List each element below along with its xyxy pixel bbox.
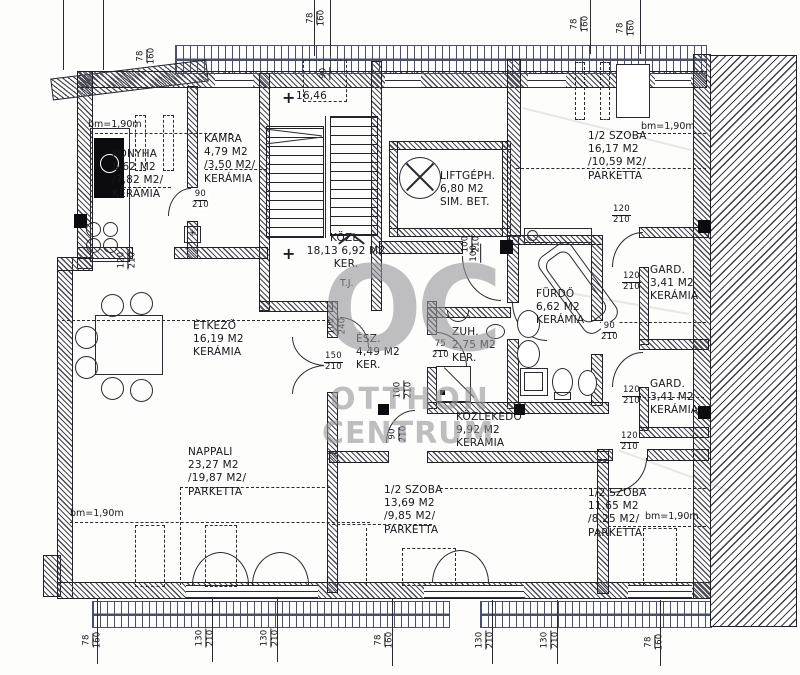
wall-kozlekedo-bottom-right xyxy=(428,452,608,462)
room-net-area: /8,25 M2/ xyxy=(588,513,647,526)
wall-center-right-upper xyxy=(508,60,520,236)
pillar xyxy=(500,240,513,254)
room-area: 16,17 M2 xyxy=(588,143,647,156)
dim-top: 130 xyxy=(475,631,486,650)
chair-icon xyxy=(130,379,153,402)
room-label-liftgeph: LIFTGÉPH. 6,80 M2 SIM. BET. xyxy=(440,170,495,210)
roof-window-dashed xyxy=(575,62,585,120)
room-area: 2,75 M2 xyxy=(452,339,496,352)
dim-bottom: 210 xyxy=(486,632,496,649)
french-door-arc xyxy=(220,552,249,585)
door-arc xyxy=(462,256,501,301)
dim-top: 120 xyxy=(622,386,641,397)
dim-top: 120 xyxy=(612,205,631,216)
flue-box: ✳ xyxy=(184,226,201,243)
chair-icon xyxy=(101,377,124,400)
dim-top: 120 xyxy=(620,432,639,443)
pillar xyxy=(698,406,711,419)
wall-zuh-left-upper xyxy=(428,302,436,334)
room-net-area: /10,59 M2/ xyxy=(588,156,647,169)
french-door-arc xyxy=(192,552,221,585)
floor-plan-canvas: ✳ + + OC OTTHON CENTRUM KONYHA 8, xyxy=(0,0,800,675)
dimension-label: 78160 xyxy=(374,632,394,649)
dim-top: 120 xyxy=(622,272,641,283)
wall-konyha-bottom-right xyxy=(175,248,267,258)
room-name: KAMRA xyxy=(204,133,255,146)
dim-top: 78 xyxy=(306,11,317,24)
dim-bottom: 240 xyxy=(338,318,348,335)
dim-top: 120 xyxy=(117,251,128,270)
room-floor: KER. xyxy=(356,359,400,372)
dim-bottom: 210 xyxy=(551,632,561,649)
room-floor: KERÁMIA xyxy=(650,404,698,417)
window-sill xyxy=(424,585,524,598)
dimension-tick xyxy=(314,0,315,56)
wall-zuh-top xyxy=(428,308,510,317)
room-label-etkezo: ÉTKEZŐ 16,19 M2 KERÁMIA xyxy=(193,320,244,360)
dim-top: 100 xyxy=(393,381,404,400)
double-door-arc xyxy=(292,365,326,394)
dim-top: 90 xyxy=(319,67,330,80)
dim-bottom: 210 xyxy=(399,426,409,443)
window xyxy=(655,73,691,88)
room-area: 4,49 M2 xyxy=(356,346,400,359)
shower-drain xyxy=(440,390,445,395)
dimension-tick xyxy=(330,0,331,56)
dim-top: 100 xyxy=(327,317,338,336)
room-label-elosz: ÉSZ. 4,49 M2 KER. xyxy=(356,333,400,373)
wall-lift-bottom xyxy=(390,229,510,236)
dim-top: 130 xyxy=(540,631,551,650)
dim-bottom: 210 xyxy=(271,630,281,647)
pillar xyxy=(378,404,389,415)
room-label-szoba-bottom-middle: 1/2 SZOBA 13,69 M2 /9,85 M2/ PARKETTA xyxy=(384,484,443,537)
french-door-arc xyxy=(460,550,489,583)
dimension-label: 130210 xyxy=(195,629,215,648)
stairs-divider xyxy=(325,116,326,238)
dim-bottom: 210 xyxy=(623,397,640,407)
room-area: 4,79 M2 xyxy=(204,146,255,159)
dimension-label: 100 xyxy=(470,244,481,263)
chimney-block xyxy=(616,64,650,118)
window-sill xyxy=(628,585,692,598)
dim-bottom: 210 xyxy=(623,283,640,293)
dim-bottom: 160 xyxy=(93,632,103,649)
chair-icon xyxy=(75,326,98,349)
roof-window-dashed-line xyxy=(366,528,367,586)
dim-bottom: 210 xyxy=(432,351,449,361)
room-area: 3,41 M2 xyxy=(650,277,698,290)
door-arc xyxy=(612,232,643,267)
wall-elosz-left-lower xyxy=(328,393,337,453)
dim-top: 78 xyxy=(570,17,581,30)
dimension-label: 130210 xyxy=(475,631,495,650)
room-name: GARD. xyxy=(650,378,698,391)
pillar xyxy=(74,214,87,228)
tj-label: T.J. xyxy=(340,278,354,289)
dimension-tick xyxy=(640,0,641,54)
dimension-label: 78160 xyxy=(644,634,664,651)
bm-line-szoba-right xyxy=(440,488,706,489)
wall-szoba-br-top-right xyxy=(648,450,708,460)
toilet-tank xyxy=(554,392,571,400)
roof-window-dashed xyxy=(135,525,165,587)
room-net-area: /7,82 M2/ xyxy=(112,174,163,187)
room-area: 18,13 6,92 M2 xyxy=(298,245,394,258)
hand-basin-icon xyxy=(447,310,469,322)
wall-gard-left-low xyxy=(640,388,648,430)
door-arc xyxy=(612,352,643,387)
room-area: 23,27 M2 xyxy=(188,459,246,472)
shower-tray-icon xyxy=(436,366,471,402)
room-label-zuh: ZUH. 2,75 M2 KER. xyxy=(452,326,496,366)
room-area: 6,62 M2 xyxy=(536,301,584,314)
room-area: 9,92 M2 xyxy=(456,424,522,437)
dimension-label: 90210 xyxy=(388,426,408,443)
french-door-arc xyxy=(252,552,281,585)
room-net-area: /19,87 M2/ xyxy=(188,472,246,485)
dim-bottom: 210 xyxy=(404,382,414,399)
wall-kozl-bottom xyxy=(260,302,332,311)
room-area: 13,69 M2 xyxy=(384,497,443,510)
bm-height-label: bm=1,90m xyxy=(641,121,695,132)
dim-top: 78 xyxy=(136,49,147,62)
room-label-nappali: NAPPALI 23,27 M2 /19,87 M2/ PARKETTA xyxy=(188,446,246,499)
dimension-label: 130210 xyxy=(260,629,280,648)
wall-konyha-kamra-upper xyxy=(188,87,197,187)
room-floor: KER. xyxy=(452,352,496,365)
double-door-arc xyxy=(292,337,326,366)
dim-top: 150 xyxy=(324,352,343,363)
dimension-tick xyxy=(63,0,64,70)
dimension-label: 120210 xyxy=(117,251,137,270)
room-name: NAPPALI xyxy=(188,446,246,459)
dimension-tick xyxy=(103,0,104,70)
wall-gard2-bottom xyxy=(640,428,708,437)
dim-top: 130 xyxy=(260,629,271,648)
dimension-label: 78160 xyxy=(570,16,590,33)
chair-icon xyxy=(101,294,124,317)
room-floor: KERÁMIA xyxy=(456,437,522,450)
dimension-label: 120210 xyxy=(622,386,641,406)
room-floor: KERÁMIA xyxy=(204,173,255,186)
room-floor: PARKETTA xyxy=(384,524,443,537)
dim-bottom: 210 xyxy=(192,201,209,211)
roof-tile-band-bottom-left xyxy=(92,601,450,628)
room-name: KONYHA xyxy=(112,148,163,161)
roof-slope-band-right xyxy=(710,55,797,627)
dimension-label: 78160 xyxy=(136,48,156,65)
dim-top: 78 xyxy=(374,633,385,646)
room-net-area: /3,50 M2/ xyxy=(204,159,255,172)
dim-top: 100 xyxy=(470,244,481,263)
dimension-label: 120210 xyxy=(622,272,641,292)
dimension-label: 120210 xyxy=(612,205,631,225)
room-label-kamra: KAMRA 4,79 M2 /3,50 M2/ KERÁMIA xyxy=(204,133,255,186)
window xyxy=(215,73,253,88)
dim-bottom: 160 xyxy=(581,16,591,33)
washing-machine-drum xyxy=(524,372,543,391)
bm-line-nappali-v xyxy=(180,487,181,585)
dim-bottom: 160 xyxy=(655,634,665,651)
bm-line-bottom-left xyxy=(70,522,370,523)
room-area: 16,19 M2 xyxy=(193,333,244,346)
room-name: 1/2 SZOBA xyxy=(384,484,443,497)
stove-burner-icon xyxy=(86,238,101,253)
room-area: 6,80 M2 xyxy=(440,183,495,196)
room-label-furdo: FÜRDŐ 6,62 M2 KERÁMIA xyxy=(536,288,584,328)
room-name: ÉTKEZŐ xyxy=(193,320,244,333)
dim-top: 90 xyxy=(603,322,616,333)
room-label-gard-1: GARD. 3,41 M2 KERÁMIA xyxy=(650,264,698,304)
window xyxy=(528,73,566,88)
dimension-label: 78160 xyxy=(306,10,326,27)
room-floor: KERÁMIA xyxy=(536,314,584,327)
wall-lift-left xyxy=(390,142,397,236)
room-area: 3,41 M2 xyxy=(650,391,698,404)
bm-height-label: bm=1,90m xyxy=(88,119,142,130)
dimension-label: 120210 xyxy=(620,432,639,452)
room-label-kozlekedo: KÖZLEKEDŐ 9,92 M2 KERÁMIA xyxy=(456,411,522,451)
roof-window-dashed xyxy=(643,528,677,586)
bm-line-top-right xyxy=(638,133,706,134)
pillar xyxy=(698,220,711,233)
dimension-label: 100240 xyxy=(327,317,347,336)
wall-lift-top xyxy=(390,142,510,149)
dim-top: 78 xyxy=(82,633,93,646)
dimension-label: 150210 xyxy=(324,352,343,372)
dimension-label: 90210 xyxy=(601,322,618,342)
room-floor: SIM. BET. xyxy=(440,196,495,209)
room-area: 8,62 M2 xyxy=(112,161,163,174)
dimension-label: 100210 xyxy=(393,381,413,400)
level-cross-icon: + xyxy=(282,90,295,106)
room-name: LIFTGÉPH. xyxy=(440,170,495,183)
room-name: 1/2 SZOBA xyxy=(588,487,647,500)
room-label-gard-2: GARD. 3,41 M2 KERÁMIA xyxy=(650,378,698,418)
dimension-label: 90 xyxy=(319,67,330,80)
dim-top: 90 xyxy=(388,427,399,440)
room-floor: PARKETTA xyxy=(588,170,647,183)
dimension-label: 130210 xyxy=(540,631,560,650)
bm-height-label: bm=1,90m xyxy=(70,508,124,519)
room-name: ÉSZ. xyxy=(356,333,400,346)
room-floor: KERÁMIA xyxy=(193,346,244,359)
dimension-label: 75210 xyxy=(432,340,449,360)
roof-window-dashed xyxy=(600,62,610,120)
dimension-label: 78160 xyxy=(616,20,636,37)
room-label-szoba-bottom-right: 1/2 SZOBA 11,65 M2 /8,25 M2/ PARKETTA xyxy=(588,487,647,540)
wall-gard-divider xyxy=(640,340,708,349)
room-name: ZUH. xyxy=(452,326,496,339)
room-label-szoba-top-right: 1/2 SZOBA 16,17 M2 /10,59 M2/ PARKETTA xyxy=(588,130,647,183)
dim-top: 130 xyxy=(195,629,206,648)
room-label-kozl: KÖZL. 18,13 6,92 M2 KER. xyxy=(298,232,394,272)
bm-height-label: bm=1,90m xyxy=(645,511,699,522)
room-label-konyha: KONYHA 8,62 M2 /7,82 M2/ KERÁMIA xyxy=(112,148,163,201)
room-name: 1/2 SZOBA xyxy=(588,130,647,143)
dimension-label: 78160 xyxy=(82,632,102,649)
outer-wall-step xyxy=(58,258,92,270)
wall-kozlekedo-bottom-left xyxy=(330,452,388,462)
room-name: KÖZL. xyxy=(298,232,394,245)
stair-level-label: 16,46 xyxy=(296,90,327,103)
stove-burner-icon xyxy=(86,222,101,237)
room-floor: PARKETTA xyxy=(588,527,647,540)
roof-tile-band-bottom-right xyxy=(480,601,712,628)
drain-icon xyxy=(527,230,538,241)
level-cross-icon: + xyxy=(282,246,295,262)
window xyxy=(385,73,421,88)
room-name: GARD. xyxy=(650,264,698,277)
dim-bottom: 210 xyxy=(128,252,138,269)
room-floor: KERÁMIA xyxy=(650,290,698,303)
room-name: FÜRDŐ xyxy=(536,288,584,301)
washbasin-icon xyxy=(517,340,540,368)
dim-bottom: 210 xyxy=(601,333,618,343)
dining-table-icon xyxy=(95,315,163,375)
wall-zuh-left-lower xyxy=(428,368,436,408)
chair-icon xyxy=(75,356,98,379)
dimension-label: 90210 xyxy=(192,190,209,210)
room-floor: PARKETTA xyxy=(188,486,246,499)
dim-bottom: 210 xyxy=(621,443,638,453)
roof-window-dashed xyxy=(163,115,174,171)
dim-bottom: 160 xyxy=(147,48,157,65)
french-door-arc xyxy=(280,552,309,585)
dim-top: 78 xyxy=(616,21,627,34)
dim-bottom: 210 xyxy=(613,216,630,226)
room-name: KÖZLEKEDŐ xyxy=(456,411,522,424)
dim-bottom: 210 xyxy=(325,363,342,373)
stairs-flight-right xyxy=(330,116,378,236)
dim-top: 75 xyxy=(434,340,447,351)
bidet-icon xyxy=(578,370,597,396)
room-net-area: /9,85 M2/ xyxy=(384,510,443,523)
stove-burner-icon xyxy=(103,222,118,237)
dim-bottom: 160 xyxy=(317,10,327,27)
outer-wall-left-lower xyxy=(58,258,72,598)
room-floor: KERÁMIA xyxy=(112,188,163,201)
dim-bottom: 160 xyxy=(385,632,395,649)
room-floor: KER. xyxy=(298,258,394,271)
room-area: 11,65 M2 xyxy=(588,500,647,513)
door-arc xyxy=(168,188,191,216)
dim-top: 90 xyxy=(194,190,207,201)
dim-top: 78 xyxy=(644,635,655,648)
dim-bottom: 160 xyxy=(627,20,637,37)
chair-icon xyxy=(130,292,153,315)
dim-bottom: 210 xyxy=(206,630,216,647)
